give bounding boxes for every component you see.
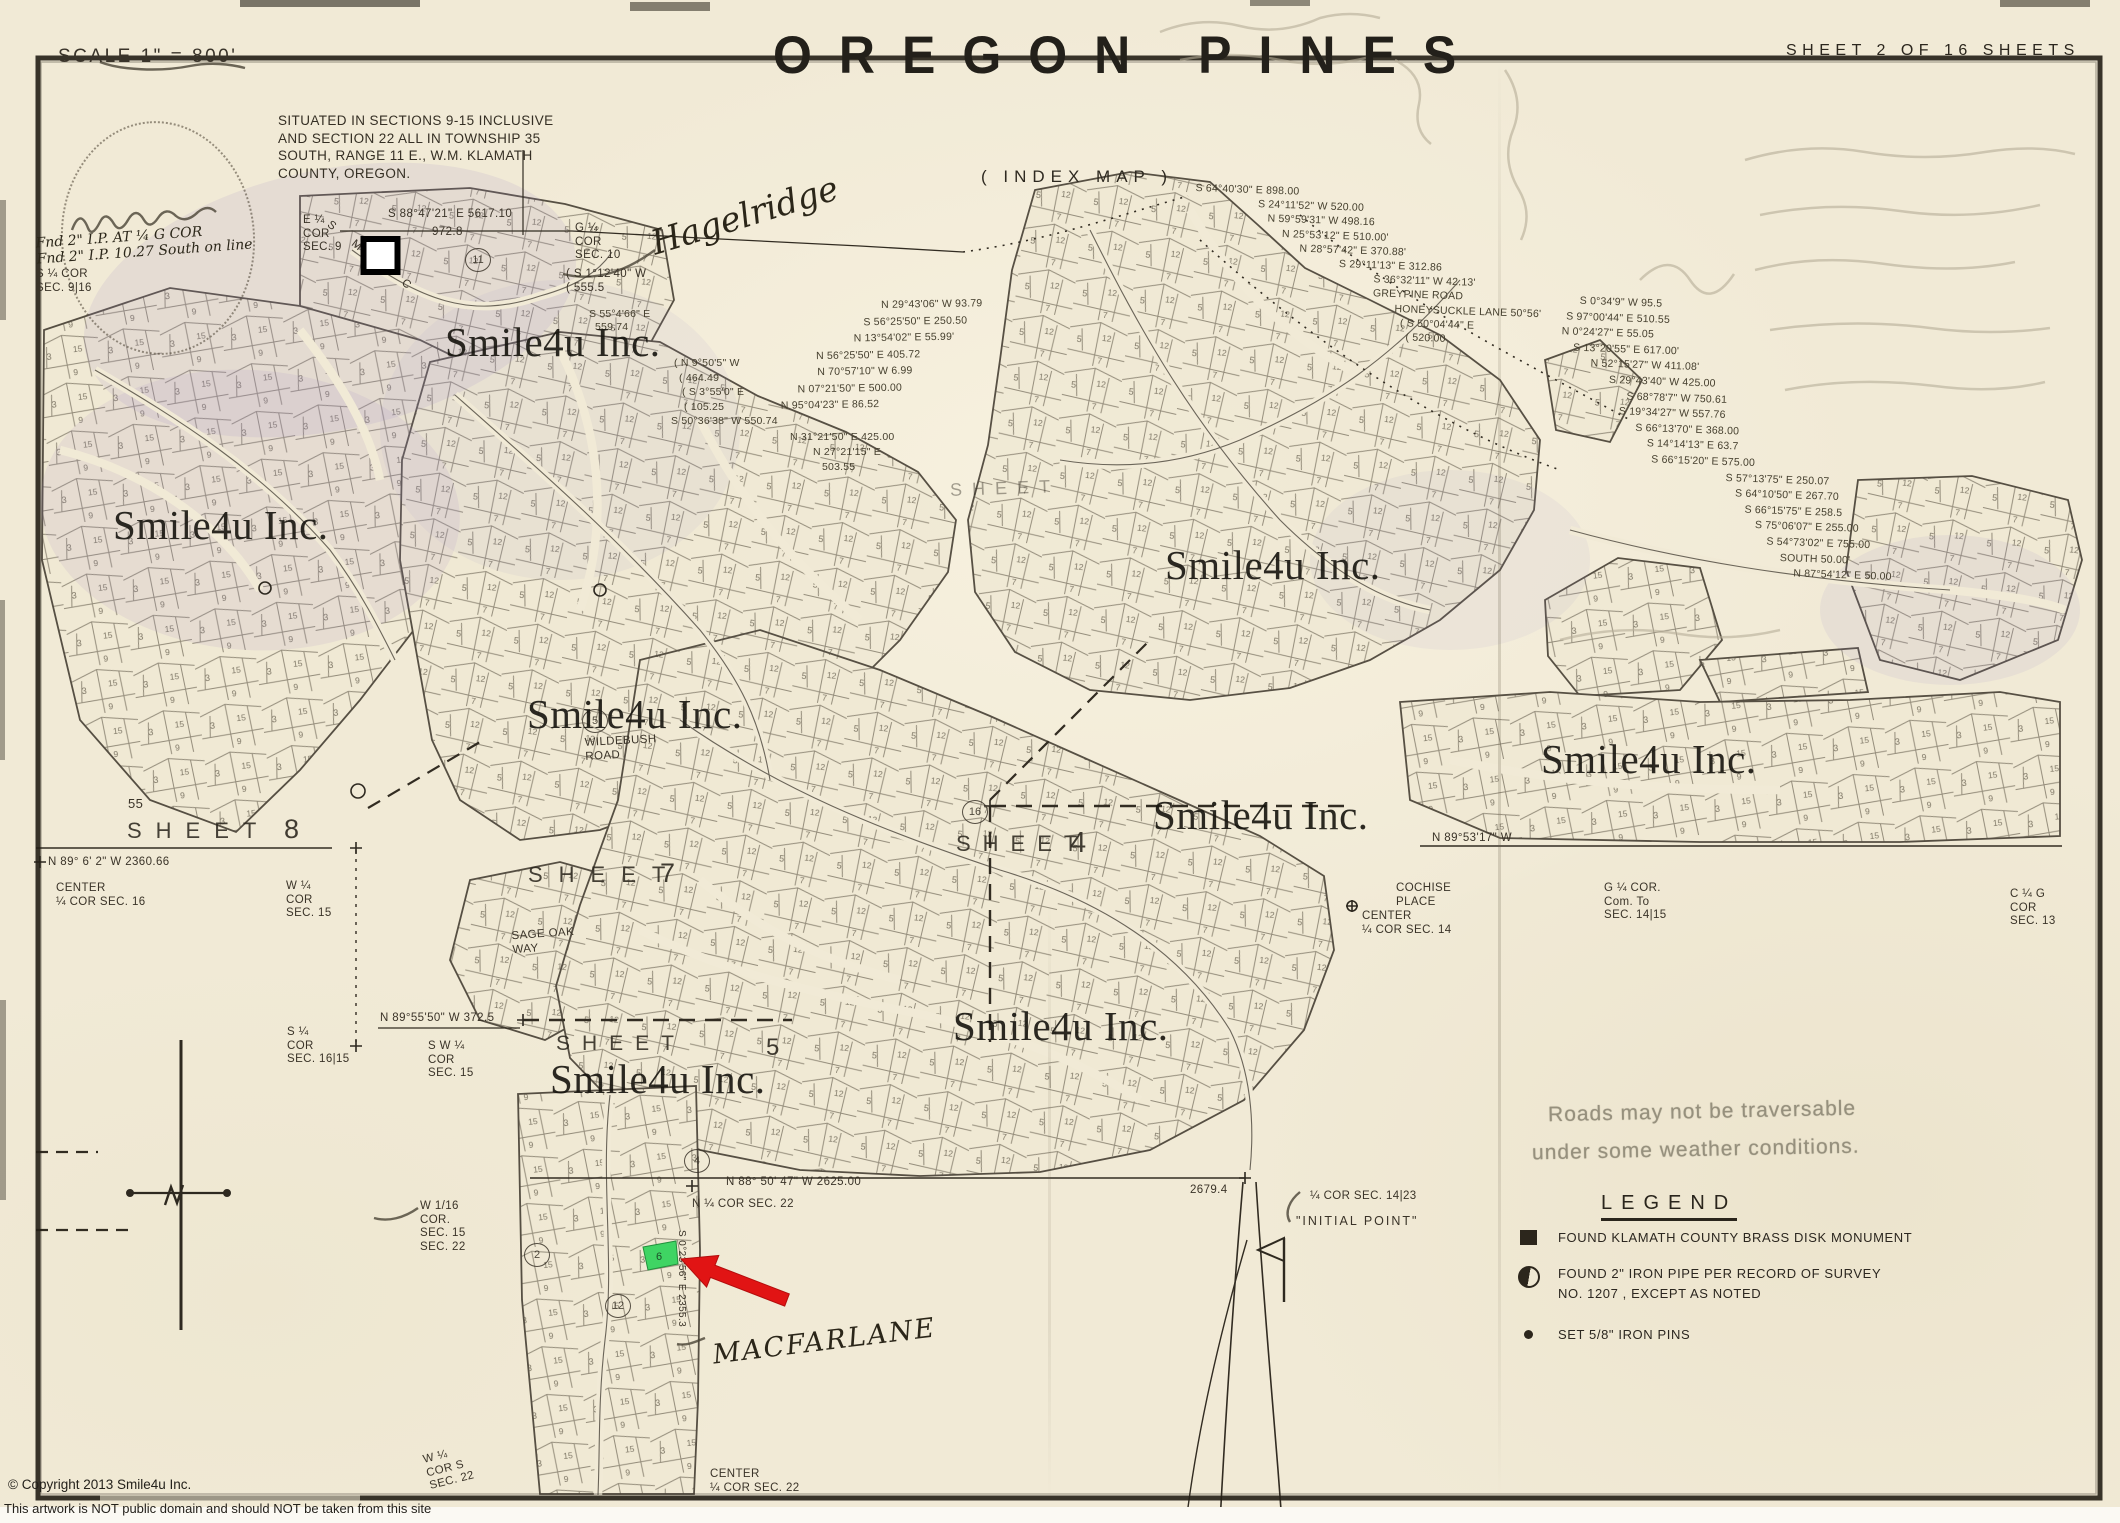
annotation-overlay: 6 — [0, 0, 2120, 1523]
red-arrow-icon — [681, 1256, 789, 1307]
highlighted-lot-number: 6 — [656, 1251, 662, 1263]
highlighted-lot: 6 — [643, 1241, 678, 1270]
hollow-square-marker — [364, 239, 398, 272]
plat-map-sheet: 5 12 7 3 15 9 — [0, 0, 2120, 1523]
